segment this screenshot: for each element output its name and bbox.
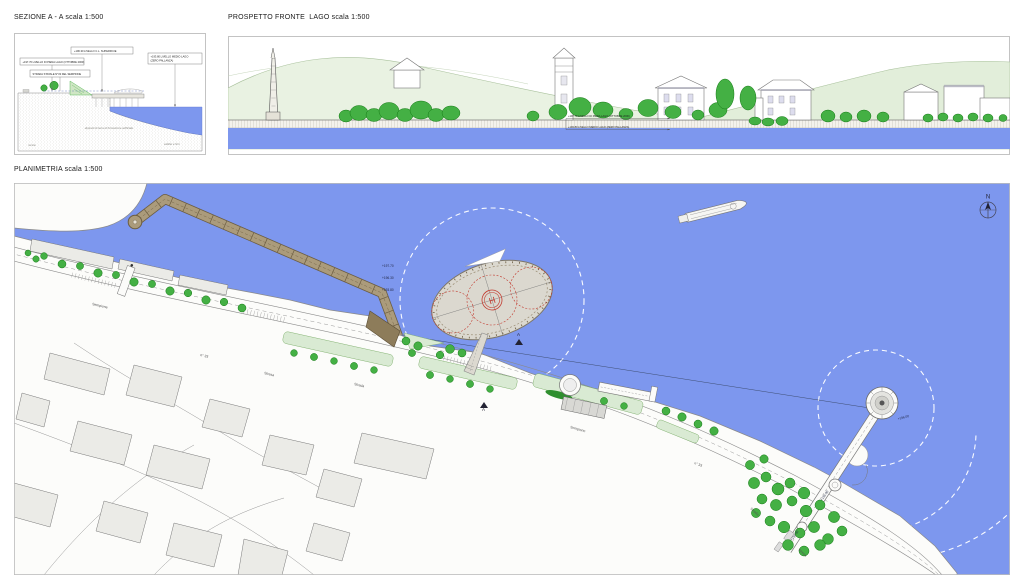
level-label: +193.80	[382, 288, 394, 292]
section-lakebed-note: sabbie e limi	[164, 142, 180, 146]
drawing-sheet: SEZIONE A - A scala 1:500 PROSPETTO FRON…	[0, 0, 1024, 586]
elevation-mean-label: +193.80 LIVELLO MEDIO LAGO (ZERO PALLANZ…	[568, 125, 629, 129]
level-label: +196.30	[382, 276, 394, 280]
plan-title: PLANIMETRIA scala 1:500	[14, 166, 103, 173]
section-surface-label: +196.30 LIVELLO C.L. SUPERFICIE	[74, 49, 117, 53]
section-mean-label-2: (ZERO PALLANZA)	[151, 59, 174, 63]
section-car	[23, 90, 29, 93]
section-title: SEZIONE A - A scala 1:500	[14, 14, 103, 21]
elevation-water	[228, 128, 1010, 149]
section-mean-label-1: +193.80 LIVELLO MEDIO LAGO	[151, 55, 189, 59]
north-label: N	[986, 195, 990, 201]
section-drawing: +196.30 LIVELLO C.L. SUPERFICIE +197.70 …	[14, 33, 206, 155]
elevation-drawing: +197.70 LIVELLO DI PIENA LAGO (OTTOBRE 2…	[228, 36, 1010, 155]
elevation-villa-2	[755, 80, 814, 120]
section-road-label: STRADA STATALE N°33 DEL SEMPIONE	[33, 72, 82, 76]
elevation-flood-label: +197.70 LIVELLO DI PIENA LAGO (OTTOBRE 2…	[568, 114, 630, 118]
section-flood-label: +197.70 LIVELLO DI PIENA LAGO (OTTOBRE 2…	[23, 60, 85, 64]
section-tree	[50, 81, 58, 89]
plan-drawing: H	[14, 183, 1010, 575]
promenade-kiosk	[560, 375, 581, 396]
level-label: +197.70	[382, 264, 394, 268]
section-tree	[41, 85, 47, 91]
round-platform	[866, 387, 898, 419]
elevation-title: PROSPETTO FRONTE LAGO scala 1:500	[228, 14, 370, 21]
section-marker-a1: A	[517, 332, 520, 337]
section-fill-note: depositi di terra di formazione artifici…	[85, 126, 134, 130]
section-rock-note: roccia	[28, 143, 36, 147]
